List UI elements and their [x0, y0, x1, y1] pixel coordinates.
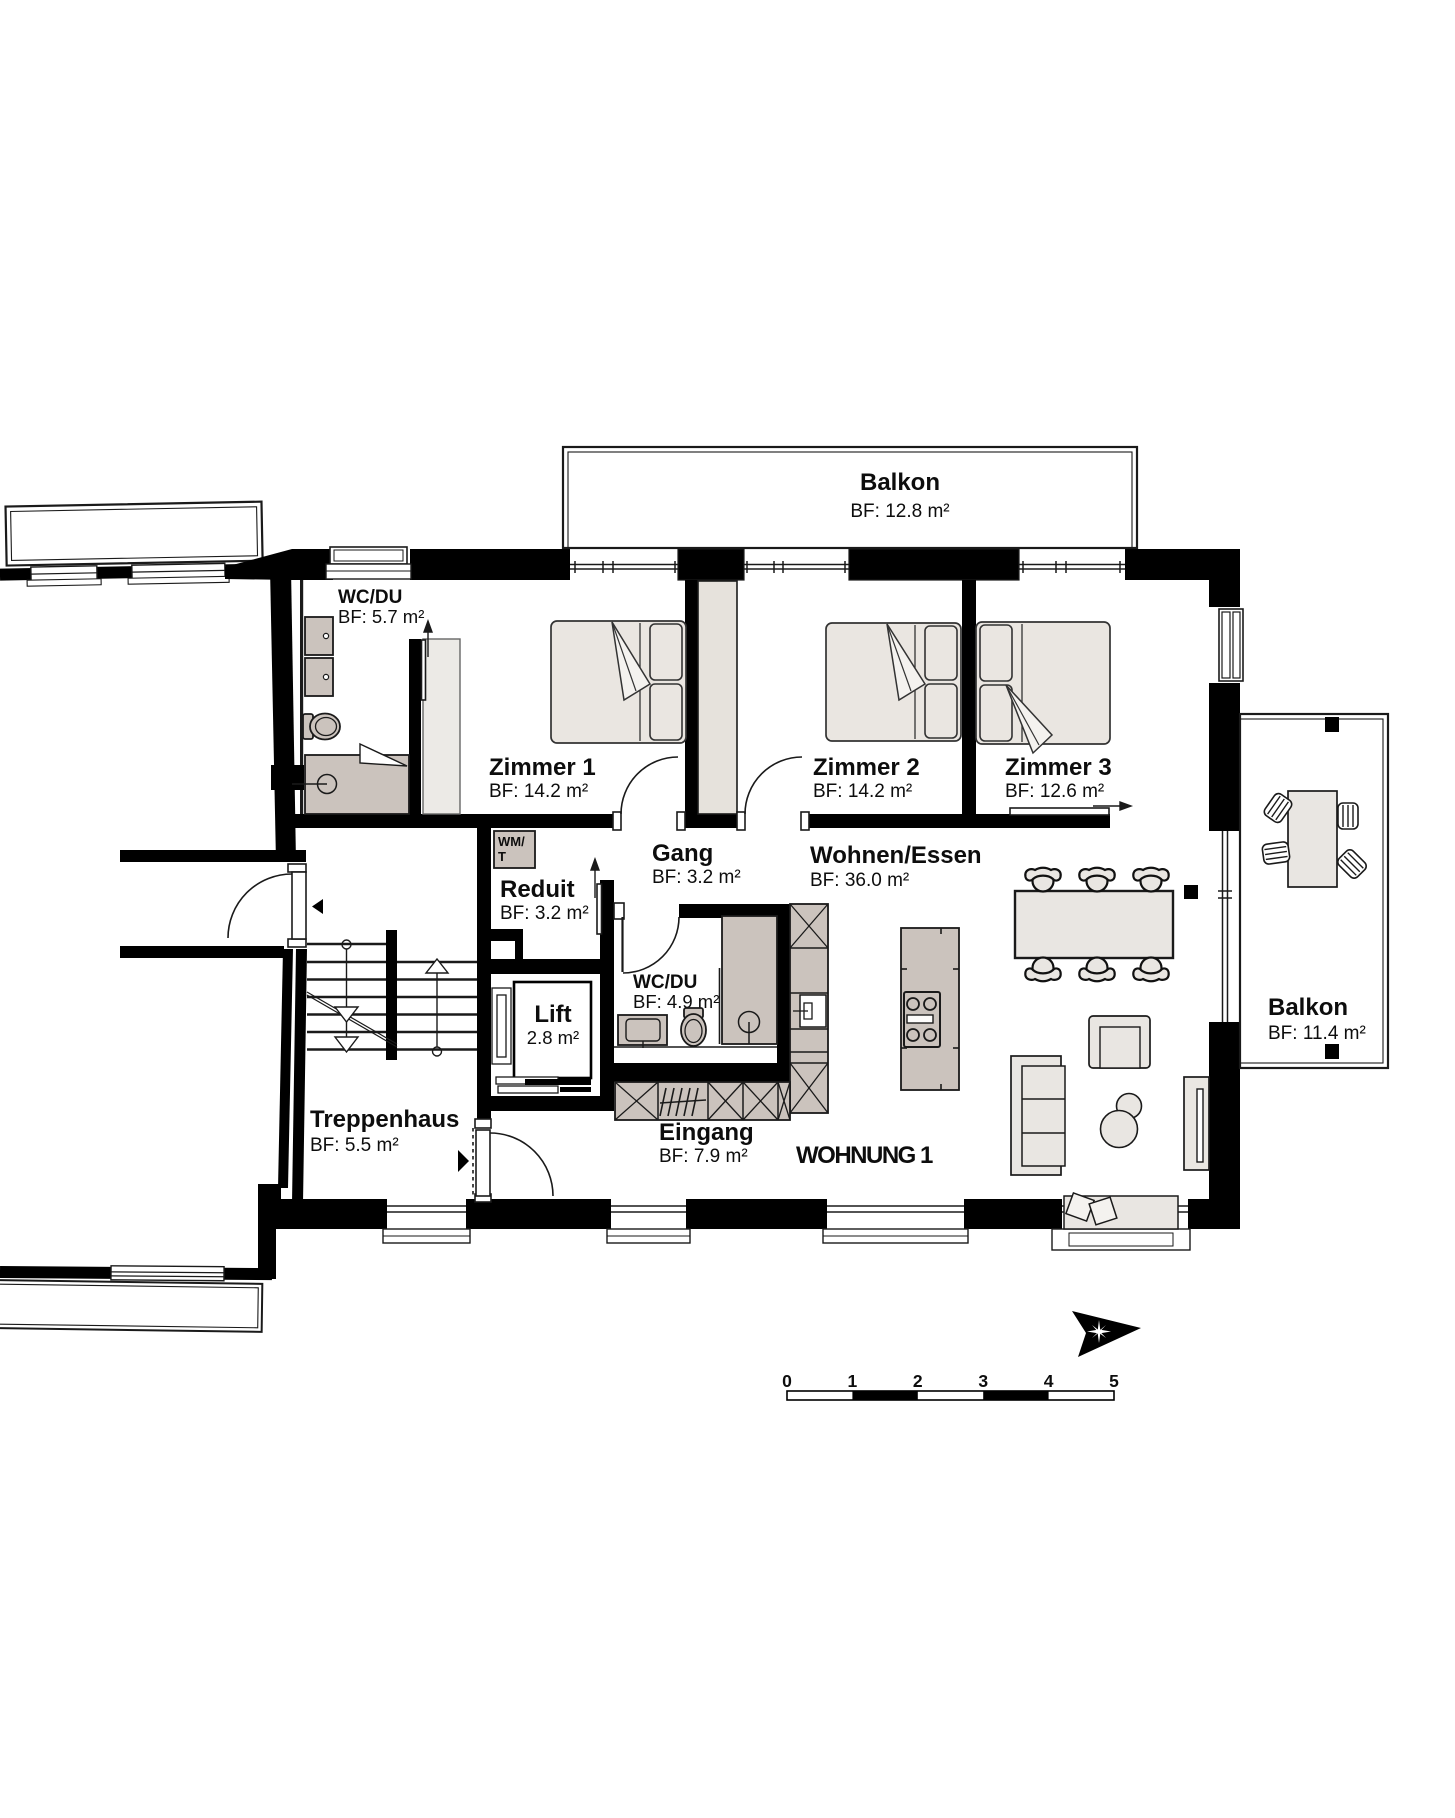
svg-text:Gang: Gang — [652, 840, 713, 867]
svg-text:WC/DU: WC/DU — [633, 972, 697, 993]
svg-text:2: 2 — [913, 1371, 923, 1391]
svg-text:WM/: WM/ — [498, 834, 525, 849]
svg-text:Zimmer 3: Zimmer 3 — [1005, 754, 1112, 781]
svg-text:Treppenhaus: Treppenhaus — [310, 1106, 459, 1133]
svg-text:BF: 12.8 m²: BF: 12.8 m² — [850, 501, 949, 522]
svg-text:Eingang: Eingang — [659, 1119, 754, 1146]
svg-text:WC/DU: WC/DU — [338, 587, 402, 608]
svg-text:5: 5 — [1109, 1371, 1119, 1391]
svg-text:BF: 5.5 m²: BF: 5.5 m² — [310, 1135, 399, 1156]
svg-text:WOHNUNG 1: WOHNUNG 1 — [796, 1142, 933, 1169]
svg-text:BF: 14.2 m²: BF: 14.2 m² — [489, 781, 588, 802]
svg-text:1: 1 — [848, 1371, 858, 1391]
svg-text:BF: 14.2 m²: BF: 14.2 m² — [813, 781, 912, 802]
svg-text:3: 3 — [978, 1371, 988, 1391]
svg-text:Lift: Lift — [534, 1001, 571, 1028]
svg-text:0: 0 — [782, 1371, 792, 1391]
svg-text:Zimmer 1: Zimmer 1 — [489, 754, 596, 781]
svg-text:BF: 12.6 m²: BF: 12.6 m² — [1005, 781, 1104, 802]
svg-text:BF: 36.0 m²: BF: 36.0 m² — [810, 870, 909, 891]
svg-text:2.8 m²: 2.8 m² — [527, 1027, 579, 1048]
svg-text:Balkon: Balkon — [1268, 994, 1348, 1021]
svg-text:Zimmer 2: Zimmer 2 — [813, 754, 920, 781]
svg-text:BF: 5.7 m²: BF: 5.7 m² — [338, 606, 424, 627]
svg-text:Balkon: Balkon — [860, 469, 940, 496]
svg-text:T: T — [498, 849, 506, 864]
svg-text:BF: 3.2 m²: BF: 3.2 m² — [652, 867, 741, 888]
svg-text:BF: 3.2 m²: BF: 3.2 m² — [500, 903, 589, 924]
svg-text:4: 4 — [1044, 1371, 1054, 1391]
svg-text:BF: 4.9 m²: BF: 4.9 m² — [633, 991, 719, 1012]
svg-text:Reduit: Reduit — [500, 876, 575, 903]
svg-text:Wohnen/Essen: Wohnen/Essen — [810, 842, 982, 869]
svg-text:BF: 7.9 m²: BF: 7.9 m² — [659, 1146, 748, 1167]
svg-text:BF: 11.4 m²: BF: 11.4 m² — [1268, 1023, 1366, 1044]
